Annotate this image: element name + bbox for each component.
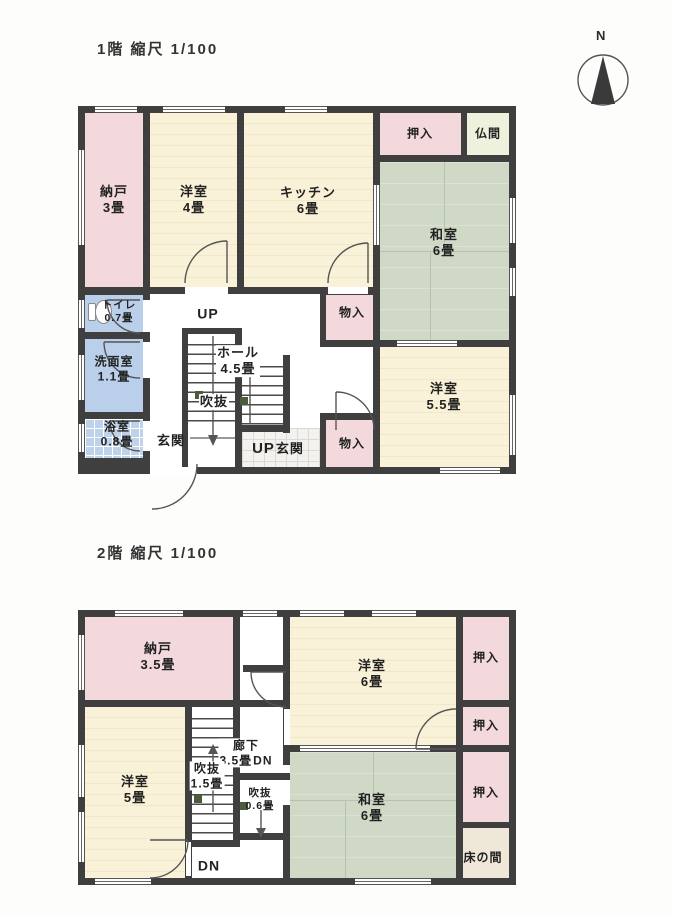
- sliding-door-marker: [397, 340, 457, 347]
- stair-up-label: UP: [197, 305, 218, 322]
- room-label: 吹抜1.5畳: [190, 761, 225, 790]
- room-label: 納戸3.5畳: [140, 641, 175, 673]
- window-marker: [372, 610, 416, 617]
- stair-post: [194, 795, 202, 803]
- room-label: 吹抜0.6畳: [245, 787, 274, 813]
- window-marker: [78, 635, 85, 690]
- door-opening: [143, 421, 150, 451]
- wall-segment: [380, 155, 509, 162]
- stair-wall: [185, 840, 240, 847]
- window-marker: [78, 355, 85, 400]
- wall-segment: [463, 822, 509, 828]
- window-marker: [78, 150, 85, 245]
- stair-down-label: DN: [198, 857, 220, 874]
- window-marker: [285, 106, 327, 113]
- room-label: 廊下 3.5畳DN: [218, 738, 273, 767]
- door-opening: [185, 287, 228, 294]
- wall-segment: [85, 332, 150, 339]
- compass: N: [570, 28, 640, 113]
- window-marker: [163, 106, 225, 113]
- window-marker: [95, 106, 137, 113]
- stair-wall: [283, 355, 290, 433]
- window-marker: [78, 424, 85, 452]
- stair-post: [240, 397, 248, 405]
- wall-segment: [320, 288, 326, 347]
- room-label: 押入: [473, 786, 499, 801]
- wall-segment: [233, 780, 240, 840]
- wall-segment: [233, 617, 240, 700]
- window-marker: [509, 268, 516, 296]
- floor2-title: 2階 縮尺 1/100: [97, 542, 218, 563]
- door-opening: [186, 842, 191, 876]
- wall-segment: [456, 752, 463, 878]
- room-label: 洋室5.5畳: [426, 381, 461, 413]
- room-label: 洋室5畳: [121, 774, 149, 806]
- window-marker: [78, 812, 85, 862]
- window-marker: [78, 300, 85, 328]
- wall-segment: [85, 458, 150, 467]
- wall-segment: [461, 113, 467, 155]
- window-marker: [509, 198, 516, 243]
- wall-segment: [456, 617, 463, 745]
- door-opening: [143, 300, 150, 332]
- room-label: 洋室4畳: [180, 184, 208, 216]
- wall-segment: [237, 113, 244, 287]
- window-marker: [355, 878, 431, 885]
- wall-segment: [243, 665, 290, 672]
- room-label: 浴室0.8畳: [101, 419, 134, 448]
- wall-segment: [85, 287, 150, 295]
- window-marker: [440, 467, 500, 474]
- room-label: 床の間: [463, 851, 502, 866]
- window-marker: [509, 395, 516, 455]
- door-opening: [150, 467, 197, 475]
- wall-segment: [320, 413, 326, 467]
- room-label: 押入: [473, 719, 499, 734]
- wall-segment: [233, 833, 290, 840]
- wall-segment: [283, 805, 290, 878]
- window-marker: [95, 878, 151, 885]
- room-label: 仏間: [475, 127, 501, 142]
- window-marker: [243, 610, 277, 617]
- window-marker: [115, 610, 183, 617]
- room-label: 玄関: [157, 433, 185, 449]
- room-label: 納戸3畳: [100, 184, 128, 216]
- floorplan-page: 1階 縮尺 1/100 2階 縮尺 1/100 N: [0, 0, 673, 917]
- entrance-step-line: [190, 437, 235, 439]
- tatami-line: [345, 800, 346, 878]
- window-marker: [300, 610, 344, 617]
- wall-segment: [320, 413, 380, 420]
- stair-wall: [182, 328, 242, 334]
- sliding-door-marker: [300, 745, 430, 752]
- wall-segment: [85, 700, 290, 707]
- door-opening: [284, 709, 290, 745]
- sliding-door-marker: [373, 185, 380, 245]
- floor1-title: 1階 縮尺 1/100: [97, 38, 218, 59]
- room-label: 物入: [339, 306, 365, 321]
- tatami-line: [430, 251, 431, 340]
- room-label: 押入: [473, 651, 499, 666]
- room-label: 和室6畳: [430, 227, 458, 259]
- room-label: キッチン6畳: [280, 185, 336, 217]
- room-label: 洗面室1.1畳: [94, 354, 133, 383]
- room-label: 吹抜: [199, 394, 229, 410]
- room-label: 押入: [407, 127, 433, 142]
- window-marker: [78, 745, 85, 797]
- door-opening: [328, 287, 368, 294]
- door-opening: [143, 342, 150, 378]
- room-label: 和室6畳: [358, 792, 386, 824]
- room-label: ホール4.5畳: [216, 345, 260, 377]
- room-label: 物入: [339, 437, 365, 452]
- room-label: トイレ0.7畳: [102, 299, 137, 325]
- room-label: 洋室6畳: [358, 658, 386, 690]
- wall-segment: [233, 773, 290, 780]
- wall-segment: [85, 412, 150, 419]
- compass-north-label: N: [596, 28, 605, 43]
- stair-wall: [242, 425, 290, 432]
- wall-segment: [463, 700, 509, 707]
- room-label: UP玄関: [252, 440, 304, 458]
